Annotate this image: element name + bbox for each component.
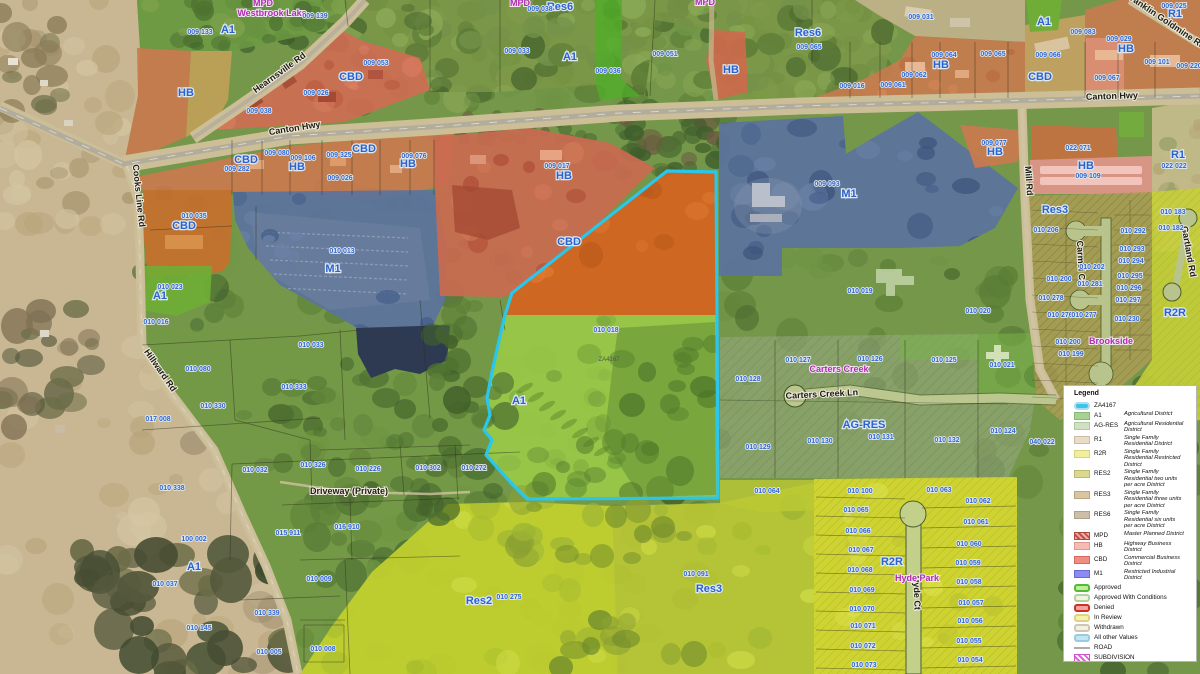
svg-text:010 055: 010 055 — [956, 638, 981, 645]
svg-text:A1: A1 — [221, 24, 235, 36]
svg-text:009 106: 009 106 — [290, 155, 315, 162]
svg-text:Mill Rd: Mill Rd — [1023, 166, 1035, 196]
svg-text:010 199: 010 199 — [1058, 351, 1083, 358]
svg-text:010 008: 010 008 — [310, 646, 335, 653]
svg-text:009 220: 009 220 — [1176, 63, 1200, 70]
svg-text:010 009: 010 009 — [306, 576, 331, 583]
svg-text:009 109: 009 109 — [1075, 173, 1100, 180]
svg-text:Res3: Res3 — [696, 583, 722, 595]
svg-text:CBD: CBD — [1028, 71, 1052, 83]
svg-text:010 226: 010 226 — [355, 466, 380, 473]
svg-text:M1: M1 — [841, 188, 856, 200]
svg-text:009 029: 009 029 — [1106, 36, 1131, 43]
svg-text:009 062: 009 062 — [901, 72, 926, 79]
svg-text:010 145: 010 145 — [186, 625, 211, 632]
svg-text:010 202: 010 202 — [1079, 264, 1104, 271]
svg-text:010 295: 010 295 — [1117, 273, 1142, 280]
svg-text:009 065: 009 065 — [980, 51, 1005, 58]
svg-text:009 053: 009 053 — [363, 60, 388, 67]
svg-text:010 200: 010 200 — [1055, 339, 1080, 346]
svg-text:A1: A1 — [153, 290, 167, 302]
svg-text:010 333: 010 333 — [281, 384, 306, 391]
svg-text:009 017: 009 017 — [544, 163, 569, 170]
svg-text:009 038: 009 038 — [246, 108, 271, 115]
svg-text:010 063: 010 063 — [926, 487, 951, 494]
svg-text:009 066: 009 066 — [1035, 52, 1060, 59]
svg-text:Res3: Res3 — [1042, 204, 1068, 216]
svg-text:010 296: 010 296 — [1116, 285, 1141, 292]
svg-text:MPD: MPD — [253, 0, 274, 8]
svg-text:010 058: 010 058 — [956, 579, 981, 586]
svg-text:010 276: 010 276 — [1047, 312, 1072, 319]
svg-text:010 013: 010 013 — [329, 248, 354, 255]
svg-text:Brookside: Brookside — [1089, 336, 1133, 346]
svg-text:HB: HB — [987, 146, 1003, 158]
svg-text:CBD: CBD — [352, 143, 376, 155]
svg-text:Canton Hwy: Canton Hwy — [1086, 90, 1138, 102]
svg-text:009 051: 009 051 — [652, 51, 677, 58]
svg-text:022 022: 022 022 — [1161, 163, 1186, 170]
svg-text:HB: HB — [723, 64, 739, 76]
svg-text:010 020: 010 020 — [965, 308, 990, 315]
svg-text:010 016: 010 016 — [143, 319, 168, 326]
svg-text:AG-RES: AG-RES — [843, 419, 886, 431]
svg-text:010 067: 010 067 — [848, 547, 873, 554]
svg-text:009 076: 009 076 — [401, 153, 426, 160]
svg-text:010 338: 010 338 — [159, 485, 184, 492]
svg-text:010 057: 010 057 — [958, 600, 983, 607]
svg-text:010 070: 010 070 — [849, 606, 874, 613]
svg-text:009 282: 009 282 — [224, 166, 249, 173]
svg-text:010 126: 010 126 — [857, 356, 882, 363]
svg-text:Res6: Res6 — [795, 27, 821, 39]
svg-text:Carters Creek: Carters Creek — [809, 364, 869, 374]
svg-text:010 293: 010 293 — [1119, 246, 1144, 253]
svg-text:010 032: 010 032 — [242, 467, 267, 474]
svg-text:009 077: 009 077 — [981, 140, 1006, 147]
svg-text:010 072: 010 072 — [850, 643, 875, 650]
svg-text:010 131: 010 131 — [868, 434, 893, 441]
svg-text:HB: HB — [933, 59, 949, 71]
svg-text:010 060: 010 060 — [956, 541, 981, 548]
svg-text:010 130: 010 130 — [807, 438, 832, 445]
svg-text:010 294: 010 294 — [1118, 258, 1143, 265]
svg-text:A1: A1 — [512, 395, 526, 407]
svg-text:010 200: 010 200 — [1046, 276, 1071, 283]
svg-text:010 021: 010 021 — [989, 362, 1014, 369]
svg-text:010 023: 010 023 — [157, 284, 182, 291]
svg-text:009 093: 009 093 — [814, 181, 839, 188]
svg-text:010 275: 010 275 — [496, 594, 521, 601]
svg-text:009 026: 009 026 — [327, 175, 352, 182]
svg-text:010 018: 010 018 — [593, 327, 618, 334]
svg-text:017 008: 017 008 — [145, 416, 170, 423]
svg-text:010 064: 010 064 — [754, 488, 779, 495]
svg-text:022 071: 022 071 — [1065, 145, 1090, 152]
svg-text:010 128: 010 128 — [735, 376, 760, 383]
svg-text:009 139: 009 139 — [302, 13, 327, 20]
svg-text:CBD: CBD — [339, 71, 363, 83]
svg-text:010 278: 010 278 — [1038, 295, 1063, 302]
svg-text:016 910: 016 910 — [334, 524, 359, 531]
svg-text:010 124: 010 124 — [990, 428, 1015, 435]
svg-text:009 064: 009 064 — [931, 52, 956, 59]
svg-text:010 297: 010 297 — [1115, 297, 1140, 304]
svg-text:010 127: 010 127 — [785, 357, 810, 364]
svg-text:R1: R1 — [1171, 149, 1185, 161]
svg-text:010 182: 010 182 — [1158, 225, 1183, 232]
svg-text:R2R: R2R — [881, 556, 903, 568]
svg-text:A1: A1 — [187, 561, 201, 573]
svg-text:009 016: 009 016 — [839, 83, 864, 90]
svg-text:R2R: R2R — [1164, 307, 1186, 319]
svg-text:009 080: 009 080 — [264, 150, 289, 157]
svg-text:040 022: 040 022 — [1029, 439, 1054, 446]
svg-text:ZA4167: ZA4167 — [598, 357, 620, 363]
svg-text:010 062: 010 062 — [965, 498, 990, 505]
svg-text:A1: A1 — [563, 51, 577, 63]
svg-text:010 068: 010 068 — [847, 567, 872, 574]
svg-text:009 101: 009 101 — [1144, 59, 1169, 66]
svg-text:010 056: 010 056 — [957, 618, 982, 625]
svg-text:010 272: 010 272 — [461, 465, 486, 472]
svg-text:HB: HB — [1078, 160, 1094, 172]
svg-text:010 302: 010 302 — [415, 465, 440, 472]
svg-text:010 019: 010 019 — [847, 288, 872, 295]
svg-text:MPD: MPD — [695, 0, 716, 7]
svg-text:CBD: CBD — [172, 220, 196, 232]
svg-text:010 065: 010 065 — [843, 507, 868, 514]
svg-text:A1: A1 — [1037, 16, 1051, 28]
svg-text:010 326: 010 326 — [300, 462, 325, 469]
svg-text:010 054: 010 054 — [957, 657, 982, 664]
svg-text:009 133: 009 133 — [187, 29, 212, 36]
svg-text:010 037: 010 037 — [152, 581, 177, 588]
svg-text:010 132: 010 132 — [934, 437, 959, 444]
svg-text:HB: HB — [289, 161, 305, 173]
svg-text:HB: HB — [556, 170, 572, 182]
svg-text:CBD: CBD — [557, 236, 581, 248]
svg-text:HB: HB — [1118, 43, 1134, 55]
svg-text:010 292: 010 292 — [1120, 228, 1145, 235]
svg-text:015 911: 015 911 — [276, 530, 301, 537]
svg-text:010 066: 010 066 — [845, 528, 870, 535]
svg-text:Hyde Park: Hyde Park — [895, 573, 940, 583]
svg-text:010 230: 010 230 — [1114, 316, 1139, 323]
svg-text:009 061: 009 061 — [880, 82, 905, 89]
svg-text:009 036: 009 036 — [595, 68, 620, 75]
svg-text:010 277: 010 277 — [1071, 312, 1096, 319]
svg-text:009 083: 009 083 — [1070, 29, 1095, 36]
svg-text:010 069: 010 069 — [849, 587, 874, 594]
svg-text:009 325: 009 325 — [326, 152, 351, 159]
svg-text:010 183: 010 183 — [1160, 209, 1185, 216]
svg-text:010 061: 010 061 — [963, 519, 988, 526]
svg-text:010 073: 010 073 — [851, 662, 876, 669]
svg-text:010 071: 010 071 — [850, 623, 875, 630]
svg-text:CBD: CBD — [234, 154, 258, 166]
svg-text:009 033: 009 033 — [504, 48, 529, 55]
svg-text:Driveway (Private): Driveway (Private) — [310, 486, 388, 496]
svg-text:Westbrook Lake: Westbrook Lake — [237, 8, 306, 18]
svg-text:100 002: 100 002 — [181, 536, 206, 543]
svg-text:M1: M1 — [325, 263, 340, 275]
svg-text:010 125: 010 125 — [931, 357, 956, 364]
svg-text:HB: HB — [178, 87, 194, 99]
svg-text:010 330: 010 330 — [200, 403, 225, 410]
svg-text:009 025: 009 025 — [1161, 3, 1186, 10]
svg-text:010 033: 010 033 — [298, 342, 323, 349]
svg-text:010 206: 010 206 — [1033, 227, 1058, 234]
svg-text:009 031: 009 031 — [908, 14, 933, 21]
svg-text:010 339: 010 339 — [254, 610, 279, 617]
svg-text:009 067: 009 067 — [1094, 75, 1119, 82]
svg-text:010 080: 010 080 — [185, 366, 210, 373]
svg-text:Res2: Res2 — [466, 595, 492, 607]
svg-text:010 005: 010 005 — [256, 649, 281, 656]
svg-text:010 091: 010 091 — [683, 571, 708, 578]
svg-text:010 035: 010 035 — [181, 213, 206, 220]
svg-text:009 038: 009 038 — [527, 6, 552, 13]
svg-text:010 100: 010 100 — [847, 488, 872, 495]
svg-text:009 026: 009 026 — [303, 90, 328, 97]
svg-text:010 059: 010 059 — [955, 560, 980, 567]
svg-text:010 281: 010 281 — [1077, 281, 1102, 288]
svg-text:010 129: 010 129 — [745, 444, 770, 451]
svg-text:009 065: 009 065 — [796, 44, 821, 51]
